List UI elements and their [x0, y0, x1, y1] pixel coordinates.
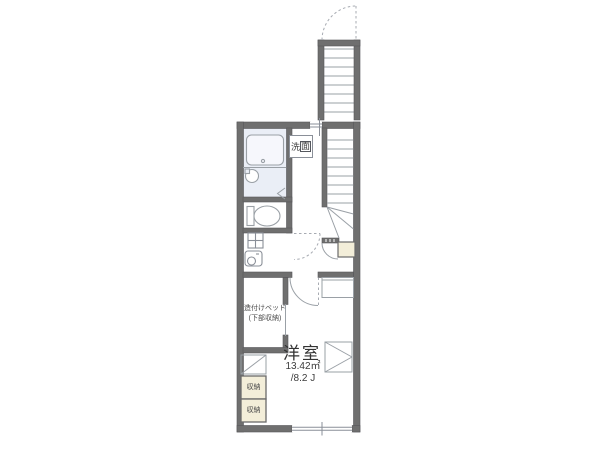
washing-machine-pan-icon [248, 233, 263, 248]
laundry-char: 洗 [291, 140, 300, 153]
laundry-area-label: 洗面 [289, 135, 313, 158]
storage-upper-label: 収納 [241, 382, 266, 392]
bathroom-washbasin-icon [245, 169, 259, 183]
toilet-icon [247, 206, 280, 226]
entrance-door-swing-icon [322, 6, 356, 40]
interior-staircase-icon [327, 140, 354, 238]
room-area-m2: 13.42㎡ [279, 361, 327, 373]
storage-lower-label: 収納 [241, 405, 266, 415]
exterior-staircase-icon [324, 49, 354, 112]
built-in-shelf-icon [322, 278, 354, 298]
interior-thin-partitions [286, 239, 335, 336]
built-in-bed-line1: 造付けベッド [241, 304, 289, 314]
room-area-jo: /8.2 J [279, 373, 327, 385]
hall-washbasin-icon [245, 251, 262, 266]
room-area-label: 13.42㎡ /8.2 J [279, 361, 327, 385]
bottom-window-icon [292, 422, 352, 436]
stair-shoe-box [338, 242, 355, 257]
floor-plan-canvas: 洗面 造付けベッド (下部収納) 洋室 13.42㎡ /8.2 J 収納 収納 [0, 0, 600, 450]
laundry-char-boxed: 面 [300, 141, 311, 152]
built-in-bed-line2: (下部収納) [241, 314, 289, 324]
built-in-bed-label: 造付けベッド (下部収納) [241, 304, 289, 324]
exterior-staircase-walls [318, 40, 360, 120]
casement-window-icon [325, 342, 352, 372]
bathtub-icon [243, 135, 287, 168]
toilet-door-swing-icon [294, 234, 320, 260]
stair-bottom-door-arc-icon [322, 243, 338, 259]
bed-step-diagonal [241, 355, 266, 374]
entrance-opening [310, 118, 322, 136]
room-door-swing-icon [290, 278, 319, 307]
